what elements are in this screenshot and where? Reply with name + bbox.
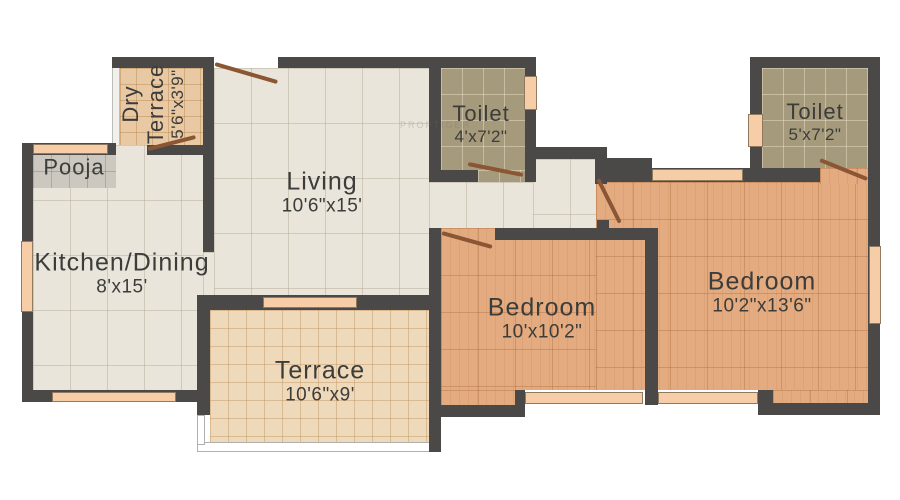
- wall-bedroom1-bottom: [429, 405, 525, 417]
- terrace-dims: 10'6"x9': [275, 384, 365, 405]
- wall-between-bedrooms: [645, 240, 658, 405]
- wall-hall-cap: [533, 147, 607, 159]
- wall-divider-living-kitchen: [203, 68, 214, 252]
- terrace-railing-bottom: [197, 442, 441, 452]
- living-name: Living: [282, 167, 363, 195]
- window-terrace-top: [263, 297, 357, 308]
- kitchen-name: Kitchen/Dining: [34, 248, 209, 276]
- window-kitchen-bottom: [52, 392, 176, 402]
- window-bedroom2-bottom: [658, 392, 758, 404]
- pooja-name: Pooja: [43, 156, 104, 181]
- window-bedroom1-bottom: [525, 392, 643, 404]
- wall-bedroom1-top: [495, 228, 658, 240]
- bedroom-2-dims: 10'2"x13'6": [708, 295, 816, 316]
- bedroom-2-name: Bedroom: [708, 267, 816, 295]
- terrace-name: Terrace: [275, 356, 365, 384]
- toilet-2-name: Toilet: [786, 100, 843, 125]
- dry-terrace-name-line2: Terrace: [143, 64, 168, 144]
- wall-bedroom2-top-corner: [605, 158, 652, 182]
- wall-top-toilet2: [750, 57, 880, 68]
- window-toilet1-right: [524, 76, 537, 110]
- bedroom-1-name: Bedroom: [488, 293, 596, 321]
- terrace-label: Terrace 10'6"x9': [275, 356, 365, 405]
- window-bedroom2-top: [652, 169, 743, 181]
- dry-terrace-label: Dry Terrace 5'6"x3'9": [119, 64, 187, 144]
- floor-plan: Pooja Dry Terrace 5'6"x3'9" Living 10'6"…: [0, 0, 900, 500]
- wall-bedroom2-bottom: [773, 403, 880, 415]
- bedroom-1-floor-lower: [441, 390, 515, 405]
- bedroom-1-label: Bedroom 10'x10'2": [488, 293, 596, 342]
- wall-toilet1-bottom: [429, 170, 478, 182]
- terrace-railing-left: [197, 415, 205, 445]
- kitchen-label: Kitchen/Dining 8'x15': [34, 248, 209, 297]
- hallway-floor: [429, 182, 533, 228]
- window-bedroom2-right: [869, 246, 881, 324]
- wall-top-living-toilet1: [278, 57, 536, 68]
- hallway-niche-floor: [533, 159, 596, 228]
- wall-bedroom2-bottom-step: [758, 390, 773, 415]
- dry-terrace-dims: 5'6"x3'9": [168, 64, 187, 144]
- toilet-2-label: Toilet 5'x7'2": [786, 100, 843, 144]
- wall-bedroom1-left: [429, 228, 441, 452]
- wall-right-outer: [868, 57, 880, 415]
- watermark-text: PROPTIGER: [400, 120, 471, 130]
- bedroom-1-dims: 10'x10'2": [488, 321, 596, 342]
- toilet-2-dims: 5'x7'2": [786, 125, 843, 144]
- bedroom-2-floor-lower: [773, 390, 868, 403]
- pooja-label: Pooja: [43, 156, 104, 181]
- window-kitchen-left: [21, 241, 33, 312]
- bedroom-2-label: Bedroom 10'2"x13'6": [708, 267, 816, 316]
- window-toilet2-left: [748, 114, 763, 147]
- window-pooja-top: [33, 144, 108, 154]
- wall-bedroom1-bottom-step: [515, 390, 525, 417]
- kitchen-dims: 8'x15': [34, 276, 209, 297]
- living-label: Living 10'6"x15': [282, 167, 363, 216]
- living-dims: 10'6"x15': [282, 195, 363, 216]
- dry-terrace-name-line1: Dry: [119, 64, 144, 144]
